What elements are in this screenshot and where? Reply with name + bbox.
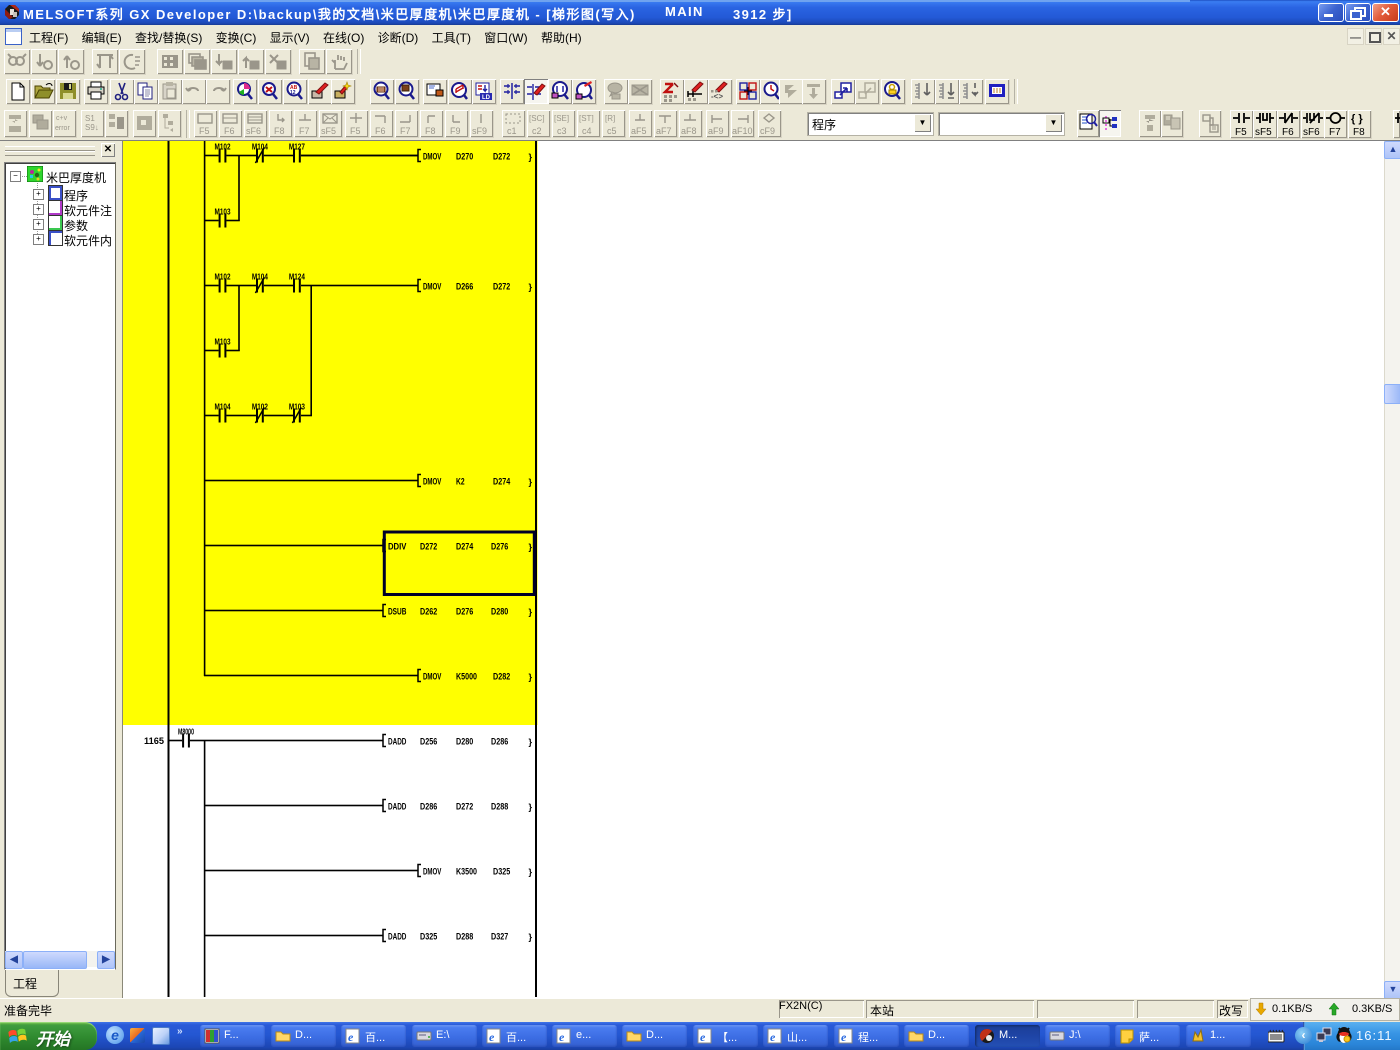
svg-text:D274: D274 <box>456 542 473 552</box>
svg-text:DADD: DADD <box>388 802 407 812</box>
svg-text:M102: M102 <box>215 272 231 282</box>
svg-text:D276: D276 <box>456 607 473 617</box>
svg-text:D256: D256 <box>420 737 437 747</box>
svg-text:LD: LD <box>482 95 491 101</box>
svg-text:[SC]: [SC] <box>529 114 545 123</box>
svg-text:F6: F6 <box>1282 127 1294 138</box>
svg-text:M127: M127 <box>289 142 305 152</box>
svg-text:[R]: [R] <box>605 114 615 123</box>
svg-text:D325: D325 <box>420 932 437 942</box>
svg-text:aF10: aF10 <box>732 126 753 136</box>
svg-text:D280: D280 <box>491 607 508 617</box>
svg-text:c2: c2 <box>532 126 542 136</box>
svg-text:M124: M124 <box>289 272 305 282</box>
svg-text:F6: F6 <box>224 126 235 136</box>
svg-text:e: e <box>700 1030 706 1044</box>
svg-text:12: 12 <box>290 90 296 96</box>
svg-text:M8000: M8000 <box>178 727 194 737</box>
svg-text:D272: D272 <box>493 152 510 162</box>
svg-text:M104: M104 <box>252 272 268 282</box>
svg-text:D325: D325 <box>493 867 510 877</box>
svg-text:S9↓: S9↓ <box>85 123 99 132</box>
svg-text:DMOV: DMOV <box>423 477 441 487</box>
svg-text:D270: D270 <box>456 152 473 162</box>
svg-text:}: } <box>529 282 533 292</box>
svg-text:c5: c5 <box>607 126 617 136</box>
svg-text:}: } <box>529 737 533 747</box>
svg-text:}: } <box>529 867 533 877</box>
svg-text:D280: D280 <box>456 737 473 747</box>
svg-text:F8: F8 <box>1353 127 1365 138</box>
svg-text:M102: M102 <box>252 402 268 412</box>
svg-text:F8: F8 <box>425 126 436 136</box>
svg-text:-<>: -<> <box>711 92 723 101</box>
svg-text:M104: M104 <box>215 402 231 412</box>
svg-text:sF6: sF6 <box>1303 127 1320 138</box>
svg-text:sF9: sF9 <box>472 126 487 136</box>
svg-text:c4: c4 <box>582 126 592 136</box>
svg-text:D288: D288 <box>491 802 508 812</box>
svg-text:aF7: aF7 <box>656 126 672 136</box>
svg-text:F5: F5 <box>350 126 361 136</box>
svg-text:}: } <box>529 932 533 942</box>
svg-text:S1: S1 <box>85 114 95 123</box>
svg-text:[ST]: [ST] <box>579 114 594 123</box>
svg-text:e: e <box>348 1030 354 1044</box>
svg-text:e: e <box>770 1030 776 1044</box>
svg-text:D272: D272 <box>456 802 473 812</box>
svg-text:DDIV: DDIV <box>388 542 406 552</box>
svg-text:c1: c1 <box>507 126 517 136</box>
svg-text:D274: D274 <box>493 477 510 487</box>
svg-text:M104: M104 <box>252 142 268 152</box>
svg-text:}: } <box>529 802 533 812</box>
svg-text:K2: K2 <box>456 477 465 487</box>
svg-text:F7: F7 <box>299 126 310 136</box>
svg-text:DMOV: DMOV <box>423 282 441 292</box>
svg-text:DMOV: DMOV <box>423 672 441 682</box>
svg-text:{ }: { } <box>1351 113 1363 125</box>
svg-text:error: error <box>55 125 70 132</box>
svg-text:M103: M103 <box>289 402 305 412</box>
svg-text:1165: 1165 <box>144 736 164 746</box>
svg-text:DMOV: DMOV <box>423 867 441 877</box>
svg-text:F6: F6 <box>375 126 386 136</box>
svg-text:F5: F5 <box>199 126 210 136</box>
svg-text:D276: D276 <box>491 542 508 552</box>
svg-text:M103: M103 <box>215 207 231 217</box>
svg-text:F9: F9 <box>450 126 461 136</box>
svg-text:e: e <box>841 1030 847 1044</box>
svg-text:F8: F8 <box>274 126 285 136</box>
svg-text:M103: M103 <box>215 337 231 347</box>
svg-text:K3500: K3500 <box>456 867 477 877</box>
svg-text:aF9: aF9 <box>708 126 724 136</box>
svg-text:D286: D286 <box>420 802 437 812</box>
svg-text:K5000: K5000 <box>456 672 477 682</box>
svg-text:aF8: aF8 <box>681 126 697 136</box>
svg-text:D286: D286 <box>491 737 508 747</box>
svg-text:DSUB: DSUB <box>388 607 407 617</box>
svg-text:F7: F7 <box>400 126 411 136</box>
svg-text:e: e <box>489 1030 495 1044</box>
svg-text:D262: D262 <box>420 607 437 617</box>
svg-text:c3: c3 <box>557 126 567 136</box>
svg-text:}: } <box>529 607 533 617</box>
svg-text:D266: D266 <box>456 282 473 292</box>
svg-text:}: } <box>529 542 533 552</box>
svg-text:D327: D327 <box>491 932 508 942</box>
svg-text:F7: F7 <box>1329 127 1341 138</box>
svg-text:aF5: aF5 <box>631 126 647 136</box>
svg-text:}: } <box>529 672 533 682</box>
svg-text:DADD: DADD <box>388 932 407 942</box>
svg-text:D272: D272 <box>420 542 437 552</box>
svg-text:DADD: DADD <box>388 737 407 747</box>
svg-text:D288: D288 <box>456 932 473 942</box>
svg-text:[SE]: [SE] <box>554 114 569 123</box>
svg-text:D282: D282 <box>493 672 510 682</box>
svg-text:sF5: sF5 <box>321 126 336 136</box>
svg-text:sF5: sF5 <box>1255 127 1272 138</box>
svg-text:DMOV: DMOV <box>423 152 441 162</box>
svg-text:D272: D272 <box>493 282 510 292</box>
svg-text:sF6: sF6 <box>246 126 261 136</box>
svg-text:e: e <box>559 1030 565 1044</box>
svg-text:c+v: c+v <box>56 115 68 122</box>
svg-text:}: } <box>529 152 533 162</box>
svg-text:M102: M102 <box>215 142 231 152</box>
svg-text:cF9: cF9 <box>760 126 775 136</box>
svg-text:F5: F5 <box>1235 127 1247 138</box>
svg-text:}: } <box>529 477 533 487</box>
